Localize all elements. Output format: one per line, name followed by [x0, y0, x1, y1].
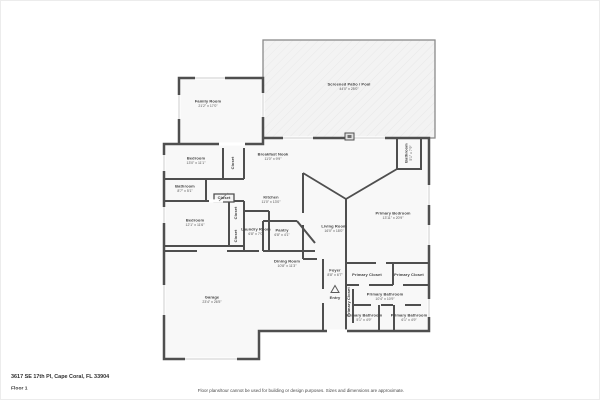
patio-area: [263, 40, 435, 138]
floor-plan-drawing: [1, 1, 600, 400]
floor-plan-page: Screened Patio / Pool44'0" x 25'0"Family…: [0, 0, 600, 400]
disclaimer: Floor plans/tour cannot be used for buil…: [133, 388, 469, 393]
patio-equipment-icon: [345, 133, 354, 140]
floor-label: Floor 1: [11, 385, 28, 391]
address: 3617 SE 17th Pl, Cape Coral, FL 33904: [11, 373, 109, 379]
family-room-area: [179, 78, 263, 144]
house-body: [164, 138, 429, 359]
